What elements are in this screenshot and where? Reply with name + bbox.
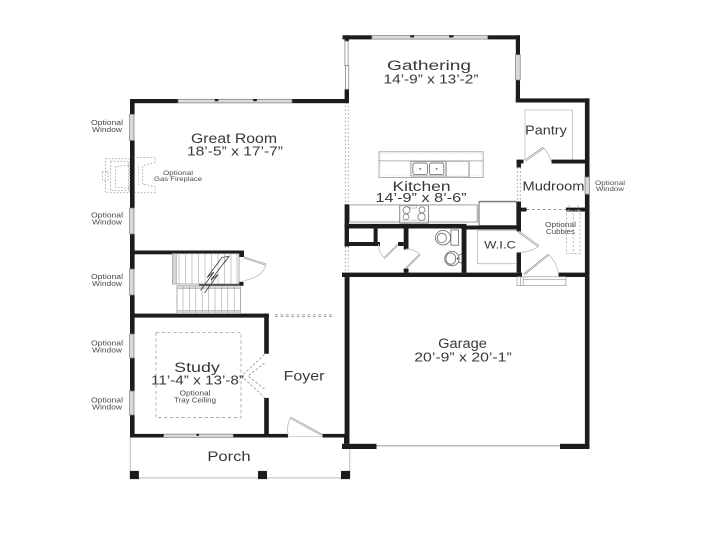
svg-text:Cubbies: Cubbies bbox=[546, 227, 575, 236]
svg-text:Window: Window bbox=[92, 281, 123, 288]
svg-text:20’-9” x 20’-1”: 20’-9” x 20’-1” bbox=[414, 350, 512, 365]
svg-text:Optional: Optional bbox=[91, 340, 124, 347]
svg-text:Gas Fireplace: Gas Fireplace bbox=[154, 176, 202, 183]
svg-text:Foyer: Foyer bbox=[284, 369, 325, 384]
svg-text:11’-4” x 13’-8”: 11’-4” x 13’-8” bbox=[151, 373, 244, 388]
svg-text:Window: Window bbox=[92, 219, 123, 226]
svg-text:Window: Window bbox=[92, 404, 123, 411]
svg-text:Mudroom: Mudroom bbox=[523, 180, 585, 194]
svg-text:Window: Window bbox=[92, 127, 123, 134]
svg-text:Optional: Optional bbox=[91, 397, 124, 404]
svg-text:Porch: Porch bbox=[207, 449, 250, 464]
svg-text:W.I.C: W.I.C bbox=[484, 240, 516, 252]
svg-text:Window: Window bbox=[92, 347, 123, 354]
svg-text:14’-9” x 13’-2”: 14’-9” x 13’-2” bbox=[384, 72, 479, 87]
svg-text:Tray Ceiling: Tray Ceiling bbox=[174, 395, 216, 404]
svg-text:Pantry: Pantry bbox=[525, 124, 568, 138]
svg-text:18’-5” x 17’-7”: 18’-5” x 17’-7” bbox=[187, 144, 283, 159]
svg-text:Optional: Optional bbox=[91, 212, 124, 219]
svg-text:Optional: Optional bbox=[91, 120, 124, 127]
svg-text:Optional: Optional bbox=[91, 274, 124, 281]
svg-text:Window: Window bbox=[596, 186, 624, 193]
svg-text:14’-9” x 8’-6”: 14’-9” x 8’-6” bbox=[376, 190, 467, 205]
